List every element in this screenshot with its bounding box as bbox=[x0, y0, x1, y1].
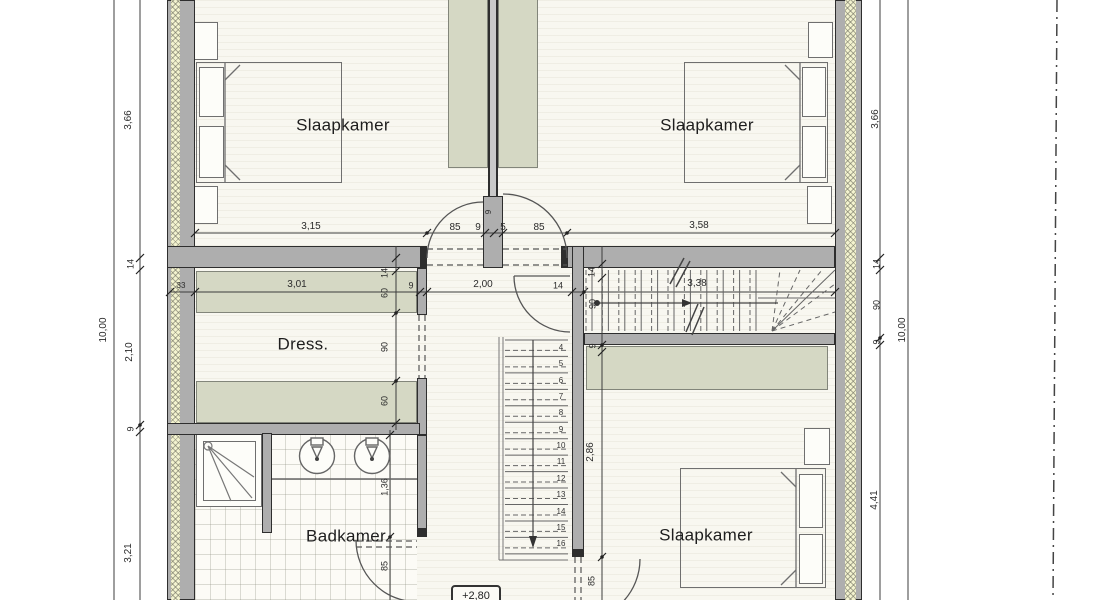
wall-dressing-hall-top bbox=[417, 268, 427, 315]
dimension-label: 9 bbox=[589, 343, 598, 348]
dimension-label: 10,00 bbox=[99, 317, 109, 342]
dimension-label: 3,38 bbox=[687, 279, 706, 289]
nightstand bbox=[807, 186, 832, 224]
wardrobe-bedroom-right bbox=[498, 0, 538, 168]
door-jamb bbox=[572, 549, 584, 557]
wall-dressing-bathroom bbox=[167, 423, 420, 435]
dimension-label: 4,41 bbox=[870, 490, 880, 509]
dimension-label: 9 bbox=[485, 210, 493, 214]
stair-step-number: 7 bbox=[559, 393, 563, 401]
wall-bedrooms-bottom-right bbox=[567, 246, 835, 268]
dimension-label: 90 bbox=[381, 342, 390, 352]
wall-bedroom-divider bbox=[488, 0, 498, 198]
dimension-label: 14 bbox=[553, 282, 563, 291]
nightstand bbox=[804, 428, 830, 465]
nightstand bbox=[808, 22, 833, 58]
dimension-label: 1,36 bbox=[381, 478, 390, 496]
wall-bedrooms-bottom-left bbox=[167, 246, 427, 268]
pillow bbox=[802, 126, 826, 178]
wall-hall-bedroom-vertical bbox=[572, 246, 584, 557]
dimension-label: 33 bbox=[177, 282, 186, 290]
nightstand bbox=[194, 186, 218, 224]
dimension-label: 90 bbox=[589, 299, 598, 309]
pillow bbox=[799, 474, 823, 528]
level-marker: +2,80 bbox=[451, 585, 501, 600]
stair-step-number: 6 bbox=[559, 377, 563, 385]
dimension-label: 85 bbox=[533, 223, 544, 233]
dimension-label: 14 bbox=[381, 268, 390, 278]
stair-step-number: 5 bbox=[559, 360, 563, 368]
room-label-bedroom-bottom-right: Slaapkamer bbox=[659, 527, 753, 544]
door-jamb bbox=[561, 246, 568, 268]
dimension-label: 85 bbox=[449, 223, 460, 233]
pillow bbox=[199, 126, 224, 178]
wall-right-insulation bbox=[845, 0, 856, 600]
dimension-label: 14 bbox=[127, 259, 136, 269]
stair-step-number: 14 bbox=[557, 508, 566, 516]
dimension-label: 3,58 bbox=[689, 221, 708, 231]
floor-plan-canvas: Slaapkamer Slaapkamer Dress. Badkamer Sl… bbox=[0, 0, 1108, 600]
stair-step-number: 4 bbox=[559, 344, 563, 352]
stair-step-number: 16 bbox=[557, 540, 566, 548]
dimension-label: 3,15 bbox=[301, 222, 320, 232]
room-label-dressing: Dress. bbox=[278, 336, 329, 353]
wall-shower-partition bbox=[262, 433, 272, 533]
dimension-label: 9 bbox=[475, 223, 481, 233]
room-label-bedroom-top-left: Slaapkamer bbox=[296, 117, 390, 134]
stair-step-number: 15 bbox=[557, 524, 566, 532]
door-jamb bbox=[417, 528, 427, 537]
dimension-label: 2,86 bbox=[586, 442, 596, 461]
dimension-label: 14 bbox=[873, 259, 882, 269]
room-label-bedroom-top-right: Slaapkamer bbox=[660, 117, 754, 134]
nightstand bbox=[194, 22, 218, 60]
property-line bbox=[1053, 0, 1057, 600]
room-label-bathroom: Badkamer bbox=[306, 528, 386, 545]
stair-step-number: 8 bbox=[559, 409, 563, 417]
pillow bbox=[199, 67, 224, 117]
wardrobe-bedroom-bottom bbox=[586, 346, 828, 390]
dimension-label: 10,00 bbox=[898, 317, 908, 342]
dimension-label: 14 bbox=[588, 267, 597, 277]
pillow bbox=[802, 67, 826, 117]
stair-step-number: 9 bbox=[559, 426, 563, 434]
dimension-label: 2,00 bbox=[473, 280, 492, 290]
dimension-label: 3,01 bbox=[287, 280, 306, 290]
dimension-label: 85 bbox=[381, 561, 390, 571]
stair-step-number: 11 bbox=[557, 458, 565, 466]
dimension-label: 5 bbox=[500, 223, 506, 233]
stair-step-number: 10 bbox=[557, 442, 566, 450]
dimension-label: 3,66 bbox=[871, 109, 881, 128]
dimension-label: 3,66 bbox=[124, 110, 134, 129]
dimension-label: 9 bbox=[408, 282, 413, 291]
dimension-label: 60 bbox=[381, 396, 390, 406]
wardrobe-bedroom-left bbox=[448, 0, 488, 168]
dimension-label: 60 bbox=[381, 288, 390, 298]
dimension-label: 90 bbox=[873, 300, 882, 310]
stair-step-number: 13 bbox=[557, 491, 566, 499]
wall-left-insulation bbox=[171, 0, 180, 600]
shower-tray bbox=[203, 441, 256, 501]
dimension-label: 2,10 bbox=[125, 342, 135, 361]
dimension-label: 9 bbox=[873, 339, 882, 344]
dimension-label: 9 bbox=[127, 426, 136, 431]
wall-stair-bedroom bbox=[584, 333, 835, 345]
dimension-label: 3,21 bbox=[124, 543, 134, 562]
pillow bbox=[799, 534, 823, 584]
wall-bathroom-hall bbox=[417, 435, 427, 537]
stair-step-number: 12 bbox=[557, 475, 566, 483]
dimension-label: 85 bbox=[588, 576, 597, 586]
door-jamb bbox=[420, 246, 427, 268]
